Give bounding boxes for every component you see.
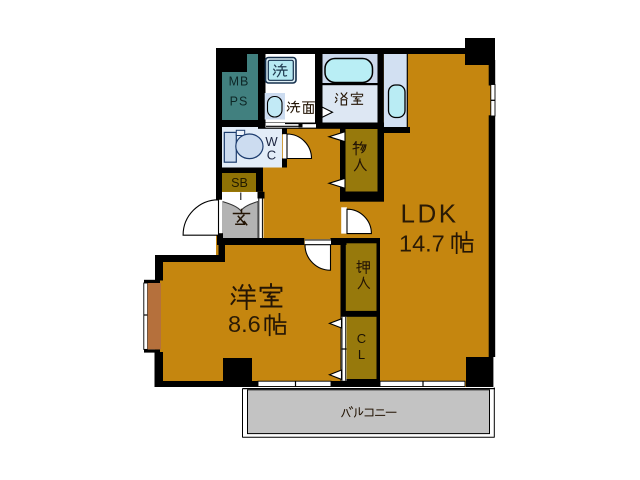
svg-text:8.6: 8.6 — [228, 311, 261, 337]
svg-text:C: C — [357, 331, 366, 346]
svg-text:14.7: 14.7 — [399, 231, 445, 257]
svg-text:L: L — [358, 347, 365, 362]
svg-text:LDK: LDK — [401, 199, 459, 229]
svg-text:C: C — [267, 148, 276, 163]
svg-text:MB: MB — [229, 75, 250, 89]
svg-text:SB: SB — [231, 176, 248, 190]
svg-text:PS: PS — [230, 95, 249, 109]
